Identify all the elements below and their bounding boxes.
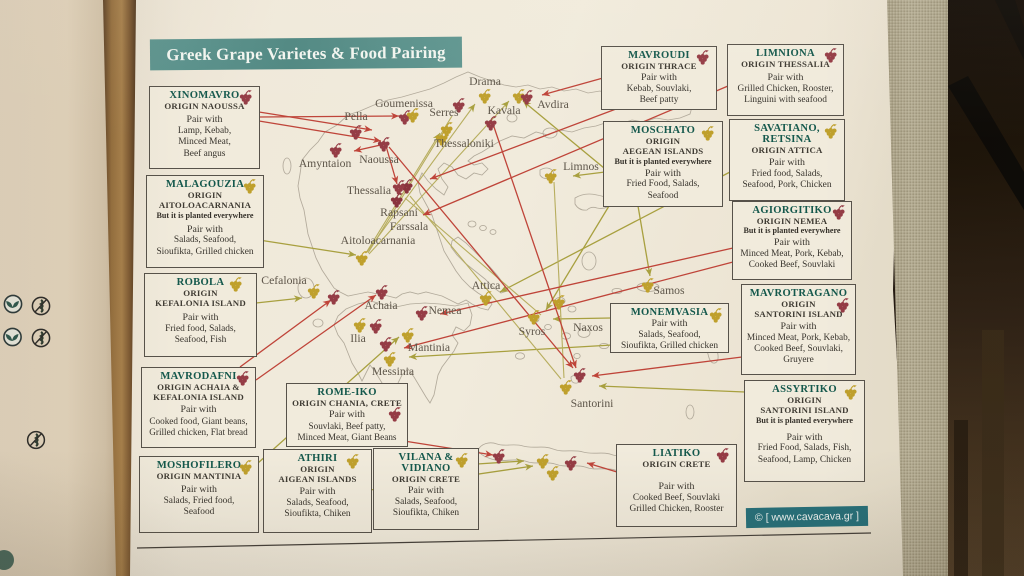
svg-text:Attica: Attica — [472, 279, 501, 292]
svg-text:Goumenissa: Goumenissa — [375, 97, 434, 110]
svg-text:Naxos: Naxos — [573, 321, 603, 334]
svg-text:Rapsani: Rapsani — [380, 206, 418, 219]
svg-text:Messinia: Messinia — [372, 365, 415, 378]
svg-text:Nemea: Nemea — [428, 304, 462, 317]
svg-text:Drama: Drama — [469, 75, 502, 88]
svg-text:Naoussa: Naoussa — [359, 153, 399, 166]
svg-text:Samos: Samos — [653, 284, 685, 297]
svg-text:Kavala: Kavala — [487, 104, 521, 117]
svg-text:Serres: Serres — [429, 106, 459, 119]
svg-text:Avdira: Avdira — [537, 98, 569, 111]
svg-text:Santorini: Santorini — [571, 397, 615, 410]
svg-text:Ilia: Ilia — [350, 332, 366, 345]
svg-text:Thessaloniki: Thessaloniki — [434, 137, 494, 150]
svg-text:Thessalia: Thessalia — [347, 184, 392, 197]
svg-text:Amyntaion: Amyntaion — [299, 157, 352, 170]
svg-text:Cefalonia: Cefalonia — [261, 274, 307, 287]
svg-text:Limnos: Limnos — [563, 160, 599, 173]
svg-text:Pella: Pella — [344, 110, 368, 123]
svg-text:Syros: Syros — [519, 325, 546, 338]
svg-text:Achaia: Achaia — [364, 299, 398, 312]
svg-text:Farssala: Farssala — [390, 220, 429, 233]
svg-text:Aitoloacarnania: Aitoloacarnania — [341, 234, 416, 247]
svg-text:Mantinia: Mantinia — [408, 341, 451, 354]
